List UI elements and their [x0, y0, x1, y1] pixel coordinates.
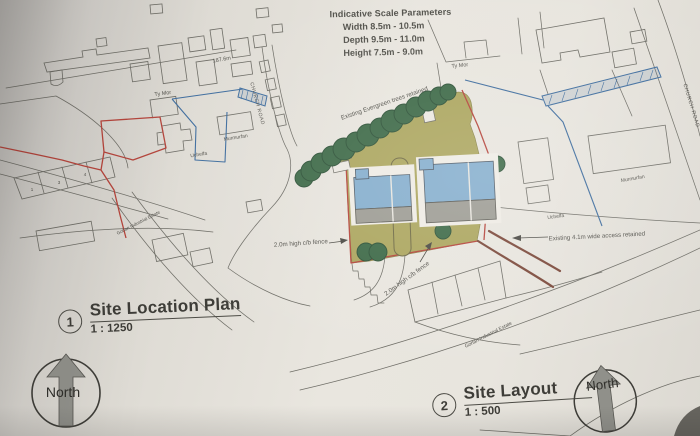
ty-mor-label: Ty Mor: [154, 90, 172, 98]
industrial-estate-label: Gorlan Industrial Estate: [464, 320, 513, 349]
photo-corner-shadow: [674, 406, 700, 436]
murmurfan-label: Murmurfan: [223, 133, 248, 143]
north-arrow: North: [564, 356, 648, 436]
plan-number-badge: 2: [432, 392, 457, 417]
building-outline: [50, 70, 63, 86]
dwelling-east: [416, 153, 502, 227]
fence-west-label: 2.0m high c/b fence: [274, 238, 329, 249]
industrial-units: [14, 157, 115, 199]
unit-number: 3: [58, 180, 61, 185]
scale-depth: Depth 9.5m - 11.0m: [343, 33, 452, 45]
murmurfan-label: Murmurfan: [620, 174, 645, 184]
scale-parameters-block: Indicative Scale Parameters Width 8.5m -…: [330, 7, 453, 59]
layout-unit-band: [408, 261, 602, 345]
uchelfa-label: Uchelfa: [190, 151, 208, 160]
site-location-plan: 187.6m Ty Mor Murmurfan Uchelfa CHURCH R…: [0, 4, 310, 330]
building-outline: [44, 48, 150, 72]
access-label: Existing 4.1m wide access retained: [548, 230, 645, 242]
layout-buildings-east: [518, 125, 671, 204]
fence-south-label: 2.0m high c/b fence: [383, 260, 431, 298]
layout-access-hatch: [542, 67, 661, 106]
location-blue-boundary: [172, 89, 243, 162]
dwelling-west: [348, 164, 417, 225]
north-arrow: North: [27, 350, 107, 432]
north-label: North: [585, 375, 619, 394]
unit-number: 4: [84, 172, 87, 177]
spot-height-label: 187.6m: [212, 55, 232, 64]
north-label: North: [46, 384, 80, 400]
scale-width: Width 8.5m - 10.5m: [343, 20, 452, 32]
church-road-label: CHURCH ROAD: [681, 83, 700, 128]
site-plan-photo: 187.6m Ty Mor Murmurfan Uchelfa CHURCH R…: [0, 0, 700, 436]
location-red-line: [0, 147, 126, 238]
location-roads: [0, 45, 310, 330]
plan-number-badge: 1: [58, 309, 83, 334]
scale-parameters-title: Indicative Scale Parameters: [330, 7, 452, 20]
fence-zigzag: [352, 264, 384, 303]
location-red-boundary: [101, 117, 166, 160]
unit-number: 1: [31, 187, 34, 192]
layout-buildings-north: [536, 18, 647, 68]
location-buildings: [36, 4, 286, 267]
uchelfa-label: Uchelfa: [547, 213, 565, 221]
ty-mor-label: Ty Mor: [451, 62, 469, 70]
